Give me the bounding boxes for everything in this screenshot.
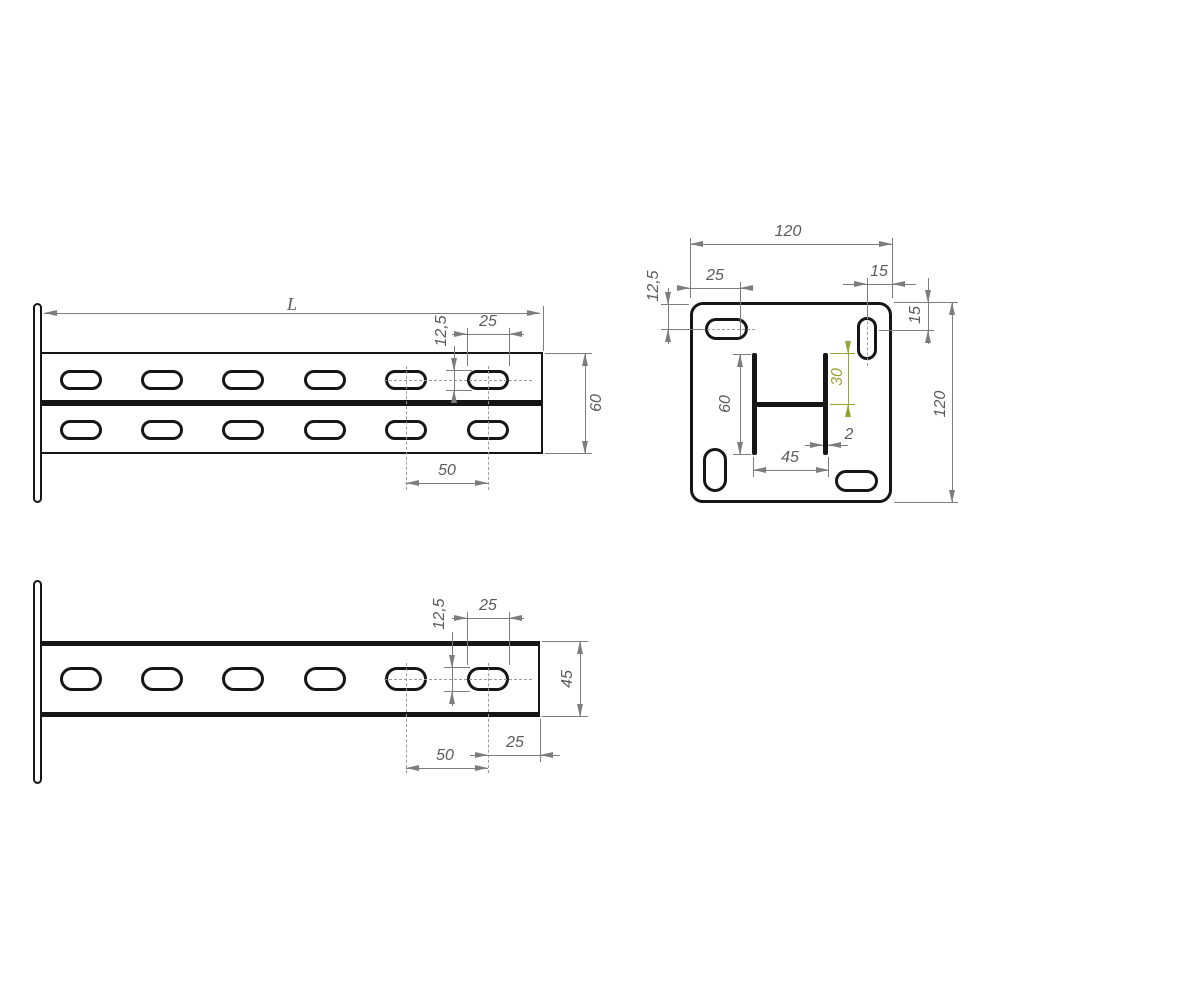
arrow — [582, 441, 588, 454]
dim-pitch-50: 50 — [432, 463, 462, 479]
dim-line — [585, 353, 586, 453]
slot — [222, 420, 264, 440]
dim-slot-width: 12,5 — [434, 309, 450, 353]
arrow — [406, 765, 419, 771]
arrow — [828, 442, 841, 448]
dim-slot-offset-top-right: 15 — [866, 264, 892, 280]
slot — [304, 667, 346, 691]
ext-line — [690, 238, 691, 298]
arrow — [665, 292, 671, 305]
arrow-left — [44, 310, 57, 316]
centerline — [697, 329, 755, 330]
dim-slot-width: 12,5 — [432, 592, 448, 636]
arrow — [854, 281, 867, 287]
arrow — [577, 704, 583, 717]
arrow — [740, 285, 753, 291]
beam-middle-seam — [42, 400, 543, 406]
arrow — [577, 641, 583, 654]
arrow — [475, 765, 488, 771]
arrow — [925, 290, 931, 303]
arrow-green — [845, 341, 851, 354]
arrow — [454, 615, 467, 621]
dim-wall-thickness: 2 — [842, 427, 856, 443]
arrow — [475, 480, 488, 486]
profile-web — [755, 402, 825, 407]
arrow — [816, 467, 829, 473]
ext-line — [446, 390, 472, 391]
slot — [141, 370, 183, 390]
arrow — [582, 353, 588, 366]
dim-line — [740, 354, 741, 454]
arrow-green — [845, 404, 851, 417]
dim-slot-length: 25 — [473, 314, 503, 330]
arrow — [406, 480, 419, 486]
dim-profile-height: 60 — [718, 389, 734, 419]
slot — [222, 370, 264, 390]
arrow — [737, 354, 743, 367]
centerline — [384, 679, 532, 680]
ext-line-green — [830, 404, 855, 405]
arrow — [949, 302, 955, 315]
arrow — [540, 752, 553, 758]
ext-line — [444, 667, 470, 668]
ext-line-green — [830, 353, 855, 354]
wall-plate-edge — [33, 580, 42, 784]
centerline — [488, 366, 489, 490]
dim-height-45: 45 — [560, 664, 576, 694]
arrow — [451, 358, 457, 371]
dim-slot-edge-right: 15 — [908, 302, 924, 328]
dim-pitch-50: 50 — [430, 748, 460, 764]
arrow — [475, 752, 488, 758]
ext-line — [446, 370, 472, 371]
dim-plate-height: 120 — [933, 385, 949, 423]
dim-end-offset: 25 — [500, 735, 530, 751]
arrow — [810, 442, 823, 448]
slot — [60, 370, 102, 390]
arrow — [509, 615, 522, 621]
slot — [304, 370, 346, 390]
slot — [60, 667, 102, 691]
dim-profile-half-height: 30 — [830, 362, 846, 392]
arrow — [451, 390, 457, 403]
technical-drawing-canvas: L 25 12,5 60 50 — [0, 0, 1200, 1000]
arrow — [509, 331, 522, 337]
wall-plate-edge — [33, 303, 42, 503]
centerline — [384, 380, 532, 381]
plate-slot-bottom-right — [835, 470, 878, 492]
arrow — [879, 241, 892, 247]
centerline — [867, 311, 868, 366]
slot — [141, 667, 183, 691]
ext-line — [543, 306, 544, 351]
ext-line — [467, 612, 468, 665]
dim-slot-edge-left: 12,5 — [646, 264, 662, 308]
dim-plate-width: 120 — [770, 224, 806, 240]
dim-length-L: L — [282, 294, 302, 315]
arrow-right — [527, 310, 540, 316]
centerline — [406, 366, 407, 490]
arrow — [454, 331, 467, 337]
dim-line — [952, 302, 953, 502]
arrow — [737, 442, 743, 455]
arrow — [677, 285, 690, 291]
dim-slot-offset-left: 25 — [700, 268, 730, 284]
plate-slot-bottom-left — [703, 448, 727, 492]
arrow — [949, 490, 955, 503]
dim-height-60: 60 — [589, 388, 605, 418]
slot — [141, 420, 183, 440]
slot — [304, 420, 346, 440]
ext-line — [892, 238, 893, 298]
arrow — [925, 330, 931, 343]
dim-profile-width: 45 — [775, 450, 805, 466]
slot — [222, 667, 264, 691]
arrow — [892, 281, 905, 287]
arrow — [690, 241, 703, 247]
dim-slot-length: 25 — [473, 598, 503, 614]
slot — [60, 420, 102, 440]
ext-line — [444, 691, 470, 692]
arrow — [665, 329, 671, 342]
dim-line — [690, 244, 892, 245]
arrow — [449, 655, 455, 668]
arrow — [449, 691, 455, 704]
arrow — [753, 467, 766, 473]
